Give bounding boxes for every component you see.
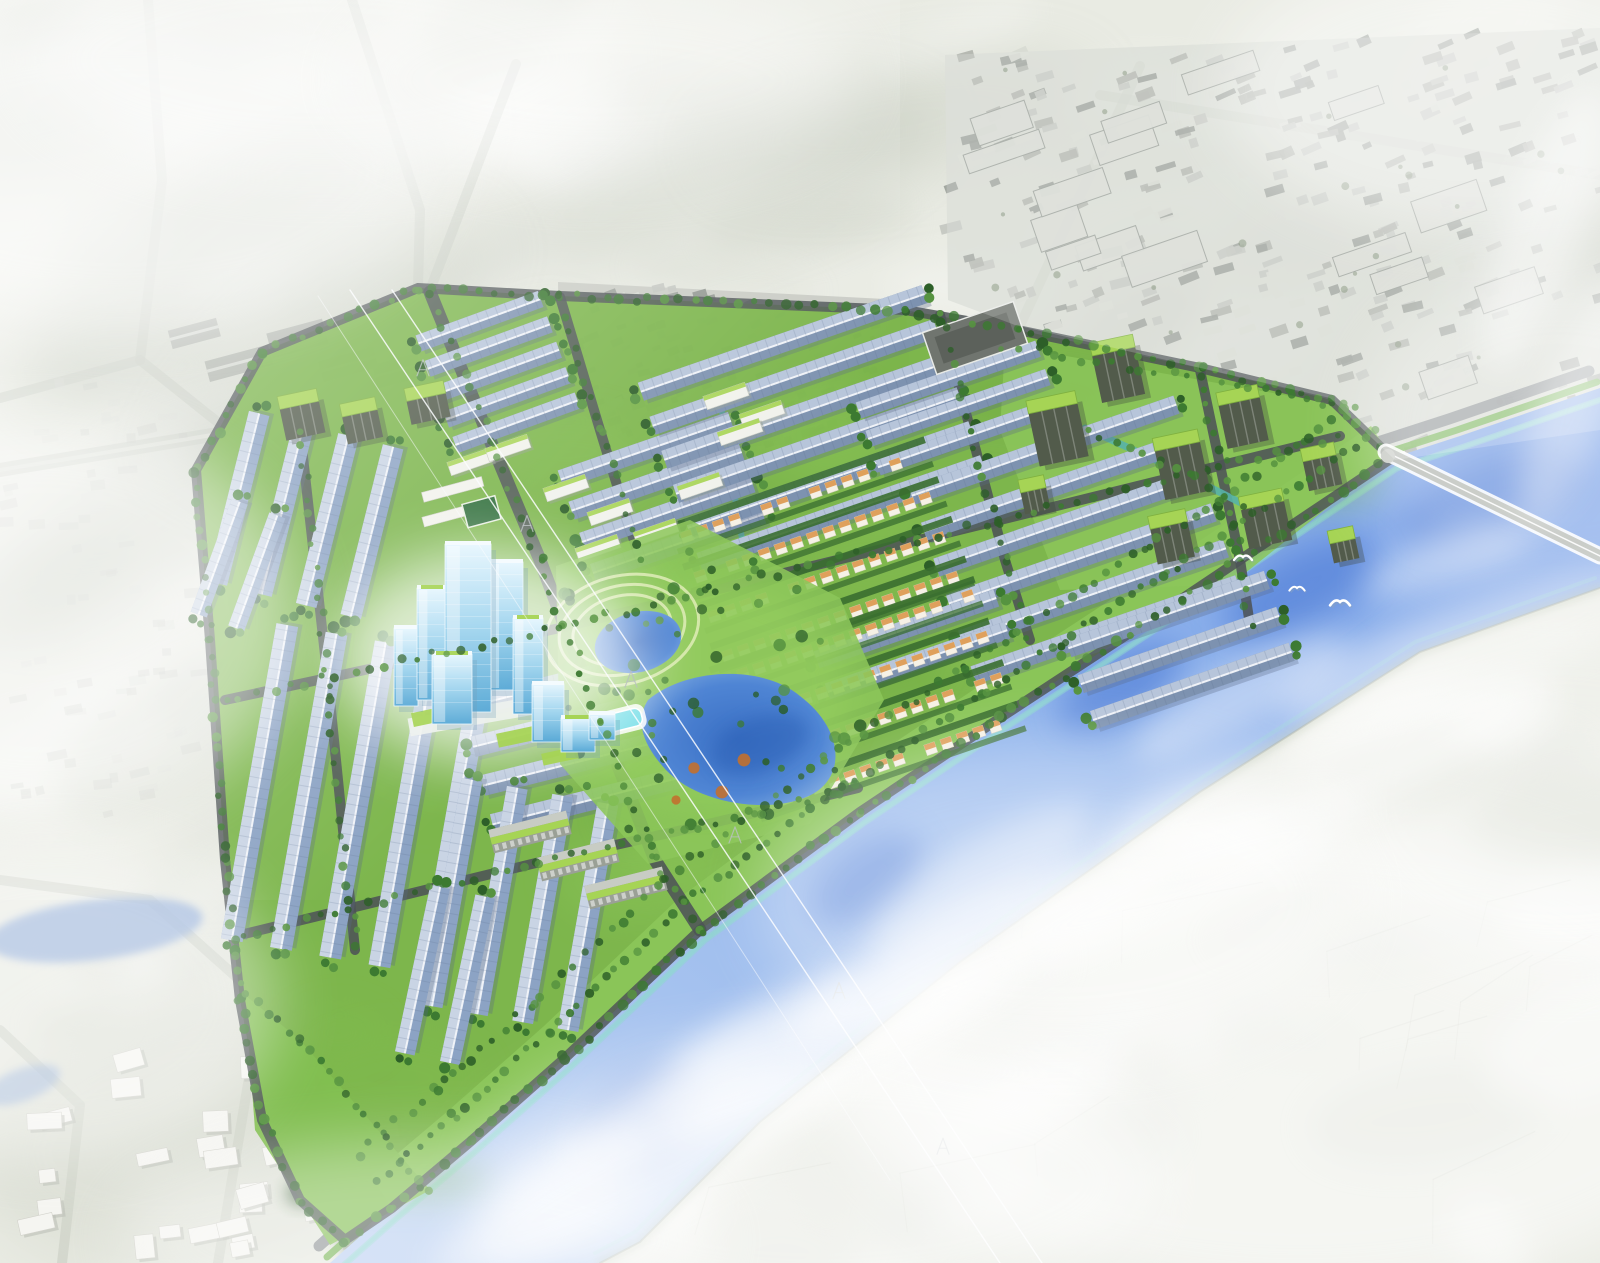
masterplan-render: Aerial masterplan rendering of a riversi… [0,0,1600,1263]
